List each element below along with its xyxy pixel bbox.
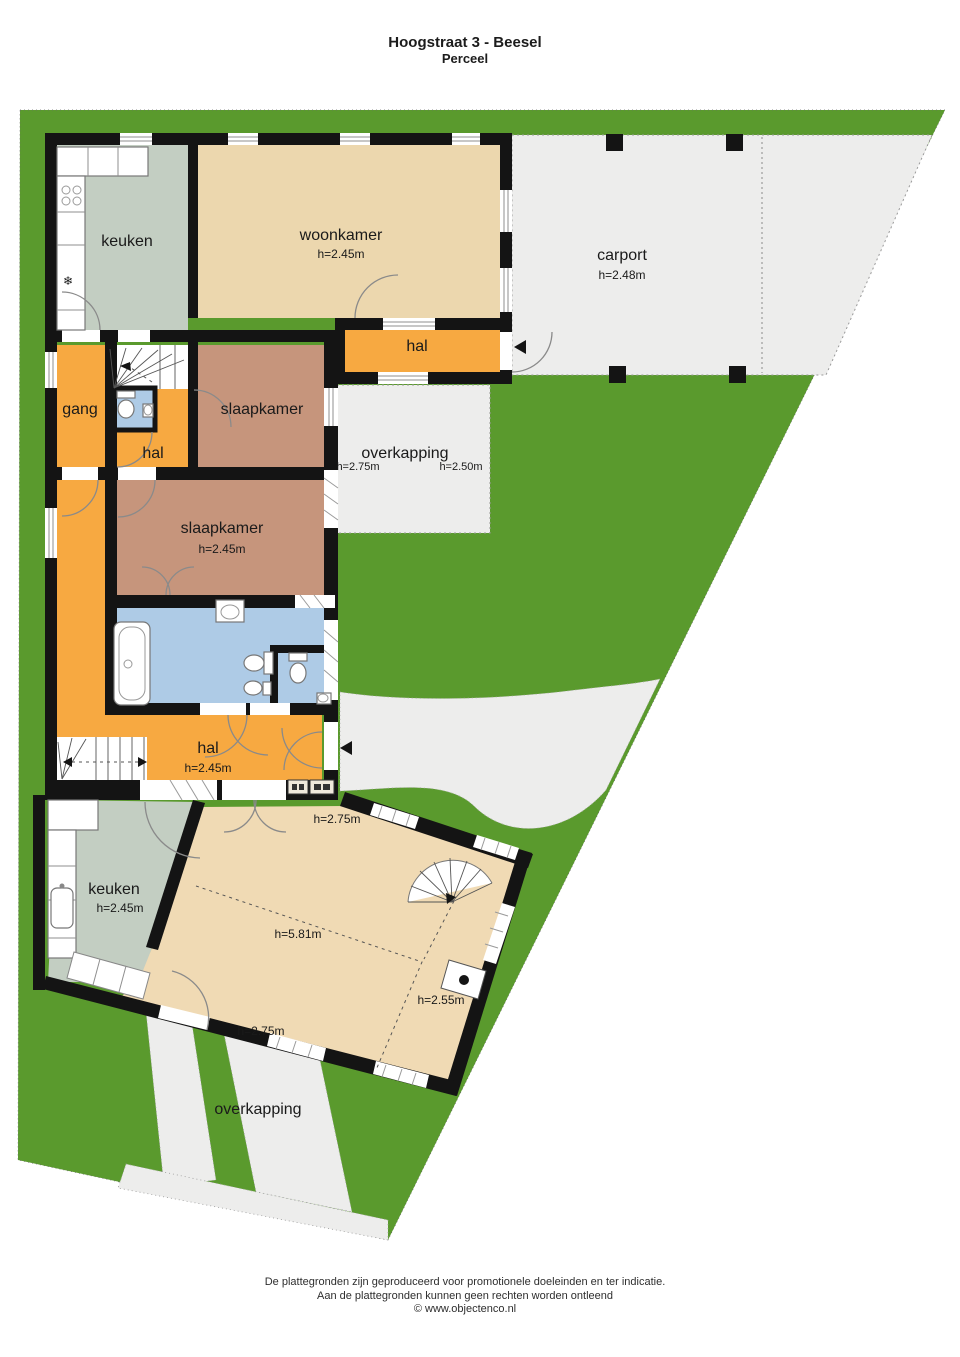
window-slaapkamer2-wall (295, 595, 335, 608)
washbasin-icon (216, 600, 244, 622)
label-bijgebouw-h-main: h=5.81m (274, 927, 321, 941)
label-keuken-beneden: keuken (88, 881, 140, 898)
meterkast-icon (288, 780, 334, 794)
bathtub-icon (114, 622, 150, 705)
opening-bijgebouw-door-1 (222, 780, 254, 800)
label-overkapping-h1: h=2.75m (336, 461, 379, 473)
label-bijgebouw-h-side: h=2.55m (417, 993, 464, 1007)
opening-halmid-door (118, 467, 156, 480)
opening-keuken-door (62, 330, 100, 342)
label-carport: carport (597, 247, 647, 264)
label-slaapkamer-voor: slaapkamer (221, 401, 304, 418)
sink-icon (51, 884, 73, 929)
label-bijgebouw-h-bottom: h=2.75m (237, 1024, 284, 1038)
label-hal-beneden: hal (197, 740, 218, 757)
disclaimer-line-1: De plattegronden zijn geproduceerd voor … (0, 1276, 930, 1290)
opening-bijgebouw-door-2 (254, 780, 286, 800)
opening-badkamer-door (200, 703, 246, 715)
fridge-icon: ❄ (63, 274, 73, 288)
label-slaapkamer-achter: slaapkamer (181, 520, 264, 537)
label-keuken-beneden-h: h=2.45m (96, 901, 143, 915)
label-keuken-top: keuken (101, 233, 153, 250)
disclaimer-line-2: Aan de plattegronden kunnen geen rechten… (0, 1290, 930, 1304)
room-slaapkamer-achter (117, 480, 324, 595)
label-hal-top: hal (406, 338, 427, 355)
label-woonkamer: woonkamer (299, 227, 383, 244)
bidet-icon (244, 681, 271, 695)
disclaimer: De plattegronden zijn geproduceerd voor … (0, 1276, 930, 1317)
opening-gang-door (62, 467, 98, 480)
label-gang: gang (62, 401, 98, 418)
label-bijgebouw-h-top: h=2.75m (313, 812, 360, 826)
label-overkapping-h2: h=2.50m (439, 461, 482, 473)
label-carport-h: h=2.48m (598, 268, 645, 282)
front-door-opening-top (500, 332, 512, 370)
label-woonkamer-h: h=2.45m (317, 247, 364, 261)
label-hal-beneden-h: h=2.45m (184, 761, 231, 775)
copyright-line: © www.objectenco.nl (0, 1303, 930, 1317)
label-overkapping-boven: overkapping (361, 445, 448, 462)
label-slaapkamer-achter-h: h=2.45m (198, 542, 245, 556)
floorplan-drawing: ❄ (0, 0, 960, 1357)
window-halbottom-wall (165, 780, 217, 800)
opening-keuken-beneden-door (140, 780, 168, 800)
label-hal-mid: hal (142, 445, 163, 462)
opening-above-stairs (118, 330, 150, 342)
room-gang-strip (57, 467, 105, 715)
floorplan-page: Hoogstraat 3 - Beesel Perceel (0, 0, 960, 1357)
carport-pad (512, 135, 932, 375)
label-overkapping-onder: overkapping (214, 1101, 301, 1118)
opening-wc-door (250, 703, 290, 715)
